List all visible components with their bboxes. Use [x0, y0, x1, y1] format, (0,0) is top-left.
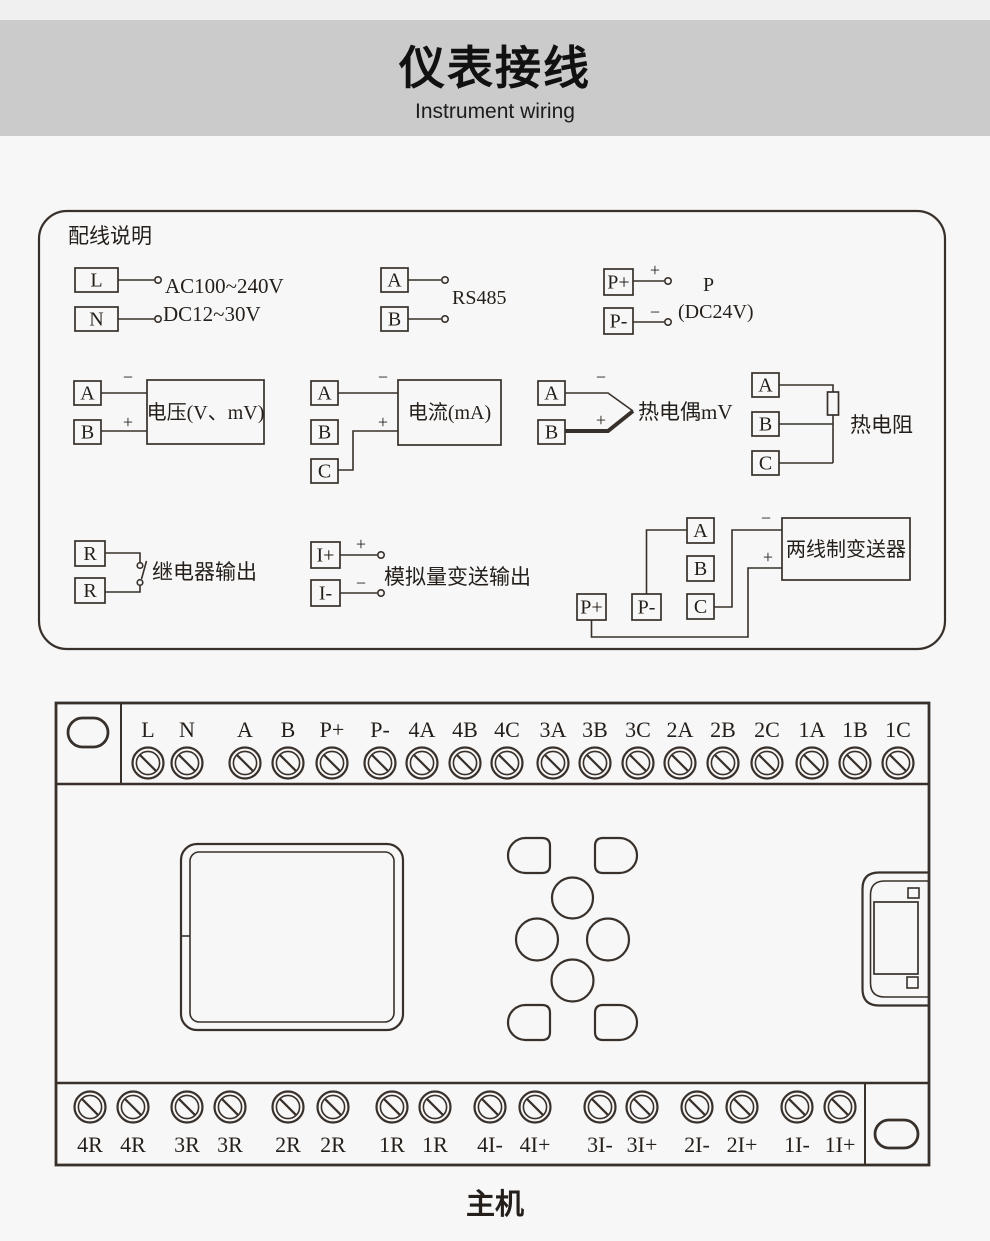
terminal-label: 1B	[842, 717, 868, 742]
key-right[interactable]	[587, 919, 629, 961]
screw-icon	[520, 1092, 551, 1123]
two-wire-transmitter-diagram: A B C P+ P- − + 两线制变送器	[577, 508, 910, 637]
minus-sign: −	[761, 508, 771, 528]
terminal-box-A: A	[758, 375, 773, 397]
screw-icon	[365, 748, 396, 779]
screw-icon	[172, 1092, 203, 1123]
terminal-box-Pplus: P+	[580, 597, 602, 619]
screw-icon	[75, 1092, 106, 1123]
screw-icon	[682, 1092, 713, 1123]
power-voltage-ac: AC100~240V	[165, 274, 284, 298]
terminal-box-B: B	[694, 558, 707, 580]
terminal-box-A: A	[317, 383, 332, 405]
plus-sign: +	[596, 410, 606, 430]
screw-icon	[708, 748, 739, 779]
terminal-box-N: N	[89, 309, 103, 331]
minus-sign: −	[650, 302, 660, 322]
rtd-diagram: A B C 热电阻	[752, 373, 913, 475]
screw-icon	[377, 1092, 408, 1123]
terminal-box-Pminus: P-	[610, 311, 628, 333]
bottom-terminal-screws	[75, 1092, 856, 1123]
wiring-diagram: 配线说明 L N AC100~240V DC12~30V A B RS485 P…	[0, 0, 990, 1241]
terminal-label: 3I-	[587, 1132, 613, 1157]
minus-sign: −	[596, 367, 606, 387]
screw-icon	[538, 748, 569, 779]
screw-icon	[118, 1092, 149, 1123]
terminal-label: 1R	[422, 1132, 448, 1157]
key-bottom-left[interactable]	[508, 1005, 550, 1040]
terminal-box-C: C	[318, 461, 331, 483]
key-down[interactable]	[552, 960, 594, 1002]
key-bottom-right[interactable]	[595, 1005, 637, 1040]
plus-sign: +	[356, 534, 366, 554]
terminal-label: 4A	[409, 717, 436, 742]
screw-icon	[492, 748, 523, 779]
terminal-box-L: L	[90, 270, 102, 292]
screw-icon	[797, 748, 828, 779]
terminal-box-Pplus: P+	[607, 272, 629, 294]
voltage-input-diagram: A B − + 电压(V、mV)	[74, 367, 264, 444]
screw-icon	[133, 748, 164, 779]
minus-sign: −	[378, 367, 388, 387]
terminal-label: 4I+	[520, 1132, 551, 1157]
device-caption: 主机	[466, 1188, 524, 1221]
analog-output-diagram: I+ I- + − 模拟量变送输出	[311, 534, 531, 606]
terminal-box-A: A	[544, 383, 559, 405]
terminal-label: L	[141, 717, 154, 742]
screw-icon	[420, 1092, 451, 1123]
resistor-symbol	[828, 392, 839, 415]
screw-icon	[883, 748, 914, 779]
analog-output-label: 模拟量变送输出	[384, 565, 531, 589]
plus-sign: +	[378, 412, 388, 432]
terminal-label: 4B	[452, 717, 478, 742]
terminal-box-B: B	[759, 414, 772, 436]
bottom-terminal-labels: 4R 4R 3R 3R 2R 2R 1R 1R 4I- 4I+ 3I- 3I+ …	[77, 1132, 855, 1157]
rs485-diagram: A B RS485	[381, 268, 506, 331]
terminal-box-R2: R	[83, 580, 97, 602]
screw-icon	[580, 748, 611, 779]
terminal-label: 4C	[494, 717, 520, 742]
terminal-label: 3C	[625, 717, 651, 742]
voltage-label: 电压(V、mV)	[147, 401, 265, 424]
screw-icon	[450, 748, 481, 779]
relay-label: 继电器输出	[152, 560, 257, 584]
aux-power-voltage: (DC24V)	[678, 301, 754, 323]
screw-icon	[752, 748, 783, 779]
key-top-left[interactable]	[508, 838, 550, 873]
terminal-box-B: B	[388, 309, 401, 331]
transmitter-label: 两线制变送器	[786, 538, 906, 561]
screw-icon	[627, 1092, 658, 1123]
terminal-label: 4R	[77, 1132, 103, 1157]
terminal-label: A	[237, 717, 253, 742]
terminal-label: 2R	[275, 1132, 301, 1157]
current-input-diagram: A B C − + 电流(mA)	[311, 367, 501, 483]
screw-icon	[273, 748, 304, 779]
thermocouple-diagram: A B − + 热电偶mV	[538, 367, 733, 444]
screw-icon	[782, 1092, 813, 1123]
minus-sign: −	[123, 367, 133, 387]
terminal-label: 1I-	[784, 1132, 810, 1157]
relay-output-diagram: R R 继电器输出	[75, 541, 257, 603]
rs485-label: RS485	[452, 287, 506, 309]
minus-sign: −	[356, 573, 366, 593]
terminal-box-B: B	[318, 422, 331, 444]
terminal-label: 1C	[885, 717, 911, 742]
terminal-box-R1: R	[83, 543, 97, 565]
terminal-label: B	[281, 717, 296, 742]
terminal-label: 2I+	[727, 1132, 758, 1157]
terminal-label: P+	[320, 717, 345, 742]
mounting-slot-bottom-right	[875, 1120, 918, 1148]
terminal-label: 2I-	[684, 1132, 710, 1157]
current-label: 电流(mA)	[408, 401, 491, 424]
aux-power-label: P	[703, 274, 714, 296]
terminal-label: 3R	[174, 1132, 200, 1157]
wiring-box-title: 配线说明	[68, 224, 152, 248]
terminal-box-C: C	[694, 596, 707, 618]
power-voltage-dc: DC12~30V	[163, 302, 261, 326]
side-connector	[863, 873, 929, 1006]
terminal-label: 1R	[379, 1132, 405, 1157]
terminal-box-B: B	[545, 422, 558, 444]
screw-icon	[273, 1092, 304, 1123]
screw-icon	[317, 748, 348, 779]
terminal-label: P-	[370, 717, 390, 742]
plus-sign: +	[763, 547, 773, 567]
terminal-box-Iplus: I+	[317, 545, 335, 567]
screw-icon	[215, 1092, 246, 1123]
thermocouple-label: 热电偶mV	[638, 400, 733, 424]
terminal-label: 1I+	[825, 1132, 856, 1157]
terminal-label: 2A	[667, 717, 694, 742]
terminal-box-C: C	[759, 453, 772, 475]
terminal-label: 3A	[540, 717, 567, 742]
main-unit-drawing: L N A B P+ P- 4A 4B 4C 3A 3B 3C 2A 2B 2C…	[56, 703, 929, 1221]
screw-icon	[475, 1092, 506, 1123]
terminal-label: 3I+	[627, 1132, 658, 1157]
screw-icon	[840, 748, 871, 779]
power-supply-diagram: L N AC100~240V DC12~30V	[75, 268, 284, 331]
terminal-label: 2C	[754, 717, 780, 742]
key-left[interactable]	[516, 919, 558, 961]
top-terminal-screws	[133, 748, 914, 779]
screw-icon	[727, 1092, 758, 1123]
screw-icon	[623, 748, 654, 779]
terminal-label: 3B	[582, 717, 608, 742]
screw-icon	[172, 748, 203, 779]
terminal-box-A: A	[693, 520, 708, 542]
top-terminal-labels: L N A B P+ P- 4A 4B 4C 3A 3B 3C 2A 2B 2C…	[141, 717, 911, 742]
aux-power-diagram: P+ P- + − P (DC24V)	[604, 260, 754, 334]
keypad	[508, 838, 637, 1040]
terminal-box-A: A	[387, 270, 402, 292]
screw-icon	[585, 1092, 616, 1123]
terminal-label: 2R	[320, 1132, 346, 1157]
rtd-label: 热电阻	[850, 413, 913, 437]
terminal-label: 3R	[217, 1132, 243, 1157]
screw-icon	[407, 748, 438, 779]
terminal-box-B: B	[81, 422, 94, 444]
wiring-instructions-box: 配线说明 L N AC100~240V DC12~30V A B RS485 P…	[39, 211, 945, 649]
screw-icon	[665, 748, 696, 779]
terminal-box-Iminus: I-	[319, 583, 332, 605]
display-window	[181, 844, 403, 1030]
terminal-label: 4R	[120, 1132, 146, 1157]
terminal-label: 2B	[710, 717, 736, 742]
screw-icon	[825, 1092, 856, 1123]
key-top-right[interactable]	[595, 838, 637, 873]
mounting-slot-top-left	[68, 718, 108, 747]
screw-icon	[230, 748, 261, 779]
terminal-label: N	[179, 717, 195, 742]
terminal-box-A: A	[80, 383, 95, 405]
plus-sign: +	[650, 260, 660, 280]
plus-sign: +	[123, 412, 133, 432]
screw-icon	[318, 1092, 349, 1123]
terminal-label: 1A	[799, 717, 826, 742]
terminal-box-Pminus: P-	[638, 597, 656, 619]
terminal-label: 4I-	[477, 1132, 503, 1157]
key-up[interactable]	[552, 878, 593, 919]
